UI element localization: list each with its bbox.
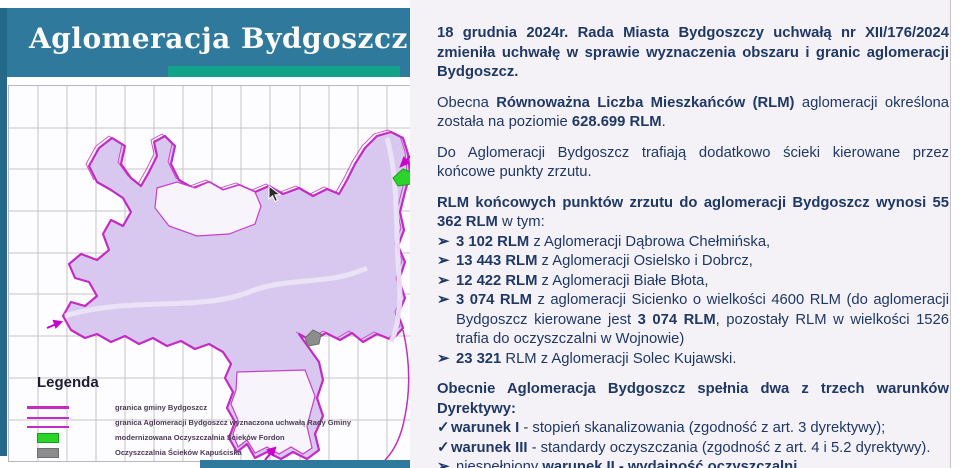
fordon-plant-swatch-icon: [27, 433, 69, 443]
arrow-bullet-icon: ➢: [437, 291, 456, 350]
bullet-item-osielsko: ➢ 13 443 RLM z Aglomeracji Osielsko i Do…: [437, 252, 949, 272]
slide-title: Aglomeracja Bydgoszcz: [7, 8, 411, 55]
arrow-bullet-icon: ➢: [437, 233, 456, 253]
check-item-condition-1: ✓ warunek I - stopień skanalizowania (zg…: [437, 419, 949, 439]
arrow-bullet-icon: ➢: [437, 272, 456, 292]
content-panel: 18 grudnia 2024r. Rada Miasta Bydgoszczy…: [410, 0, 951, 468]
discharge-arrow-west: [47, 321, 61, 328]
bullet-item-solec: ➢ 23 321 RLM z Aglomeracji Solec Kujawsk…: [437, 350, 949, 370]
paragraph-resolution: 18 grudnia 2024r. Rada Miasta Bydgoszczy…: [437, 24, 949, 83]
arrow-bullet-icon: ➢: [437, 458, 456, 468]
paragraph-rlm-current: Obecna Równoważna Liczba Mieszkańców (RL…: [437, 94, 949, 133]
legend-item: granica Aglomeracji Bydgoszcz wyznaczona…: [27, 415, 357, 430]
title-accent-bar: [168, 66, 400, 77]
slide-body-text: 18 grudnia 2024r. Rada Miasta Bydgoszczy…: [437, 24, 949, 468]
left-edge-strip: [0, 8, 7, 456]
arrow-bullet-icon: ➢: [437, 252, 456, 272]
legend-item: Oczyszczalnia Ścieków Kapuściska: [27, 445, 357, 460]
slide: Aglomeracja Bydgoszcz: [0, 0, 964, 468]
mouse-cursor: [268, 185, 281, 208]
bullet-item-biale-blota: ➢ 12 422 RLM z Aglomeracji Białe Błota,: [437, 272, 949, 292]
check-item-condition-3: ✓ warunek III - standardy oczyszczania (…: [437, 439, 949, 459]
checkmark-icon: ✓: [437, 419, 451, 439]
paragraph-directive-heading: Obecnie Aglomeracja Bydgoszcz spełnia dw…: [437, 380, 949, 419]
agglomeration-border-line-icon: [27, 417, 69, 428]
checkmark-icon: ✓: [437, 439, 451, 459]
legend-item: modernizowana Oczyszczalnia Ścieków Ford…: [27, 430, 357, 445]
kapusciska-plant-swatch-icon: [27, 448, 69, 458]
discharge-bullet-list: ➢ 3 102 RLM z Aglomeracji Dąbrowa Chełmi…: [437, 233, 949, 370]
bullet-item-dabrowa: ➢ 3 102 RLM z Aglomeracji Dąbrowa Chełmi…: [437, 233, 949, 253]
legend-title: Legenda: [37, 374, 357, 391]
paragraph-discharge-intro: RLM końcowych punktów zrzutu do aglomera…: [437, 194, 949, 233]
map-legend: Legenda granica gminy Bydgoszcz granica …: [27, 374, 357, 468]
discharge-arrow-icon: [27, 465, 69, 468]
unmet-condition-item: ➢ niespełniony warunek II - wydajność oc…: [437, 458, 949, 468]
bullet-item-sicienko: ➢ 3 074 RLM z aglomeracji Sicienko o wie…: [437, 291, 949, 350]
arrow-bullet-icon: ➢: [437, 350, 456, 370]
paragraph-inflow: Do Aglomeracji Bydgoszcz trafiają dodatk…: [437, 144, 949, 183]
map-panel: Legenda granica gminy Bydgoszcz granica …: [8, 85, 417, 462]
east-boundary-band: [385, 330, 409, 460]
gmina-border-line-icon: [27, 406, 69, 409]
legend-item: granica gminy Bydgoszcz: [27, 400, 357, 415]
